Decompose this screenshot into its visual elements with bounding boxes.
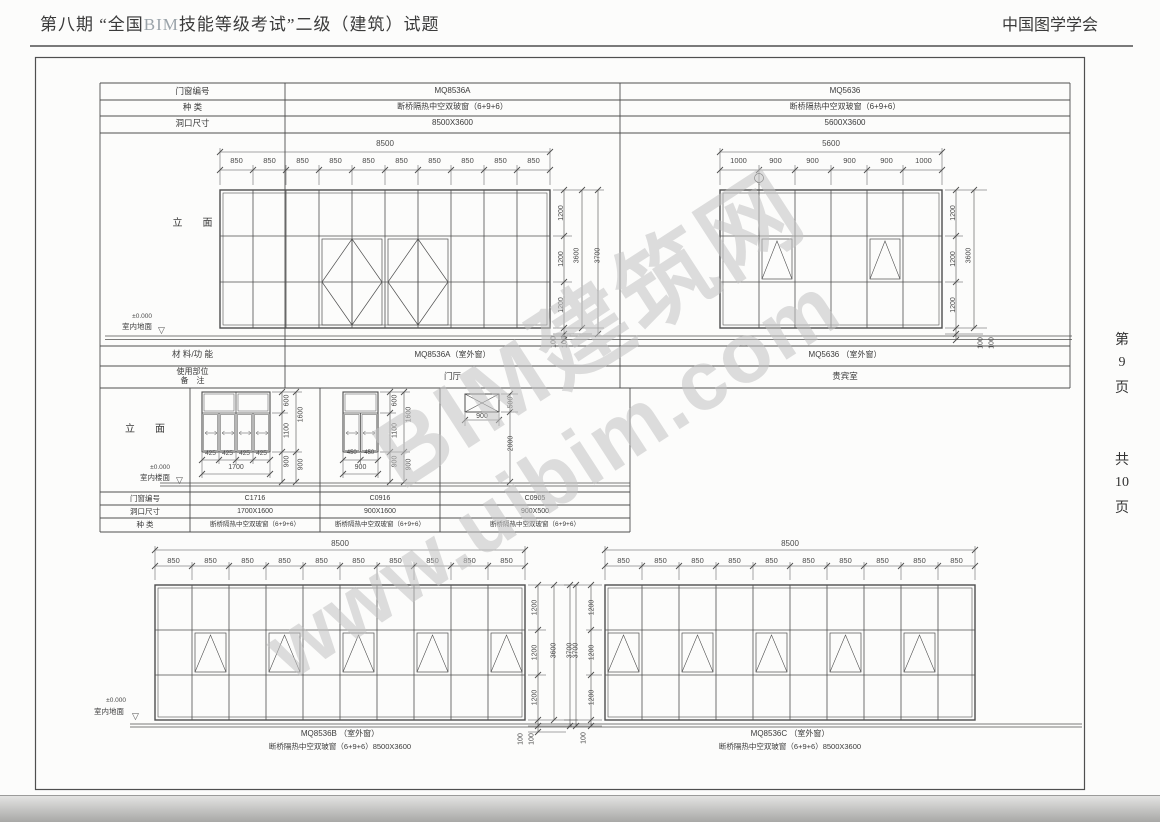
window-kind: 断桥隔热中空双玻窗（6+9+6） [320,521,440,528]
dim-subtotal: 3600 [574,245,581,267]
schedule-label-kind: 种 类 [100,103,285,112]
elevation-mq8536b-drawing [120,540,625,795]
dim-total-width: 1700 [202,464,270,472]
elevation-mq8536a-drawing [190,138,660,373]
level-marker-icon: ▽ [132,712,139,722]
dim-overall: 3700 [573,640,580,662]
window-size: 8500X3600 [285,119,620,128]
elevation-desc-mq8536b: 断桥隔热中空双玻窗（6+9+6）8500X3600 [195,743,485,751]
dim-row-heights: 120012001200 [553,190,569,328]
schedule-label-kind: 种 类 [100,521,190,529]
elevation-desc-mq8536c: 断桥隔热中空双玻窗（6+9+6）8500X3600 [645,743,935,751]
window-size: 1700X1600 [190,508,320,516]
level-annotation: ±0.000 [74,697,126,704]
dim-segments: 850850850850850850850850850850 [220,156,550,165]
dim-segments: 10009009009009001000 [720,156,942,165]
dim-transom: 600 [284,390,291,412]
elevation-name-mq8536c: MQ8536C （室外窗） [680,730,900,739]
dim-sash: 1100 [284,420,291,442]
usage-location: 门厅 [285,372,620,381]
dim-height-total: 1600 [406,404,413,426]
view-label-elevation: 立 面 [100,424,190,435]
dim-row-heights: 120012001200 [527,585,543,720]
dim-segments: 850850850850850850850850850850 [155,556,525,565]
row-label-note: 备 注 [100,377,285,386]
dim-total-width: 8500 [220,140,550,149]
level-annotation: ±0.000 [100,313,152,320]
window-size: 5600X3600 [620,119,1070,128]
dim-sash: 1100 [392,420,399,442]
dim-below-offsets: 100100 [975,333,997,353]
window-code: C0916 [320,495,440,503]
window-size: 900X1600 [320,508,440,516]
dim-segments: 425425425425 [202,450,270,457]
dim-overall: 3700 [595,245,602,267]
window-code: MQ8536A [285,87,620,96]
elevation-name-mq8536b: MQ8536B （室外窗） [230,730,450,739]
dim-total-width: 5600 [720,140,942,149]
dim-subtotal: 3600 [966,245,973,267]
usage-location: 贵宾室 [620,372,1070,381]
dim-height-total: 1600 [298,404,305,426]
window-code: C1716 [190,495,320,503]
window-code: C0905 [440,495,630,503]
level-marker-icon: ▽ [176,476,183,486]
scan-shadow-strip [0,795,1160,822]
dim-subtotal: 3600 [551,640,558,662]
schedule-label-size: 洞口尺寸 [100,508,190,516]
dim-segments: 850850850850850850850850850850 [605,556,975,565]
dim-below-offsets: 100100 [548,332,570,352]
dim-row-heights: 120012001200 [945,190,961,328]
dim-below-offsets: 100 [578,728,589,748]
dim-sill-outer: 900 [406,454,413,476]
elevation-mq8536c-drawing [560,540,1050,795]
window-c0916-drawing [320,386,450,498]
window-size: 900X500 [440,508,630,516]
floor-label: 室内地面 [64,708,124,716]
window-code: MQ5636 [620,87,1070,96]
level-marker-icon: ▽ [158,326,165,336]
schedule-label-size: 洞口尺寸 [100,119,285,128]
elevation-name-mq5636: MQ5636 （室外窗） [620,351,1070,360]
schedule-label-code: 门窗编号 [100,495,190,503]
dim-row-heights: 120012001200 [585,585,599,720]
window-kind: 断桥隔热中空双玻窗（6+9+6） [190,521,320,528]
floor-label: 室内楼面 [110,474,170,482]
dim-sill: 900 [392,451,399,473]
dim-total-width: 8500 [605,540,975,549]
dim-total-width: 8500 [155,540,525,549]
dim-height: 500 [508,392,515,414]
exam-sheet-page: 第八期 “全国BIM技能等级考试”二级（建筑）试题 中国图学学会 第9页 共10… [0,0,1160,822]
window-kind: 断桥隔热中空双玻窗（6+9+6） [440,521,630,528]
dim-total-width: 900 [343,464,378,472]
dim-sill: 2000 [508,433,515,455]
dim-transom: 600 [392,390,399,412]
floor-label: 室内地面 [92,323,152,331]
dim-width: 900 [465,413,499,421]
window-kind: 断桥隔热中空双玻窗（6+9+6） [285,103,620,112]
row-label-material: 材 料/功 能 [100,350,285,359]
level-annotation: ±0.000 [118,464,170,471]
dim-segments: 450450 [343,450,378,456]
view-label-elevation: 立 面 [100,218,285,229]
elevation-name-mq8536a: MQ8536A（室外窗） [285,351,620,360]
schedule-label-code: 门窗编号 [100,87,285,96]
dim-below-offsets: 100100 [515,729,537,749]
dim-sill-outer: 900 [298,454,305,476]
dim-sill: 900 [284,451,291,473]
window-kind: 断桥隔热中空双玻窗（6+9+6） [620,103,1070,112]
